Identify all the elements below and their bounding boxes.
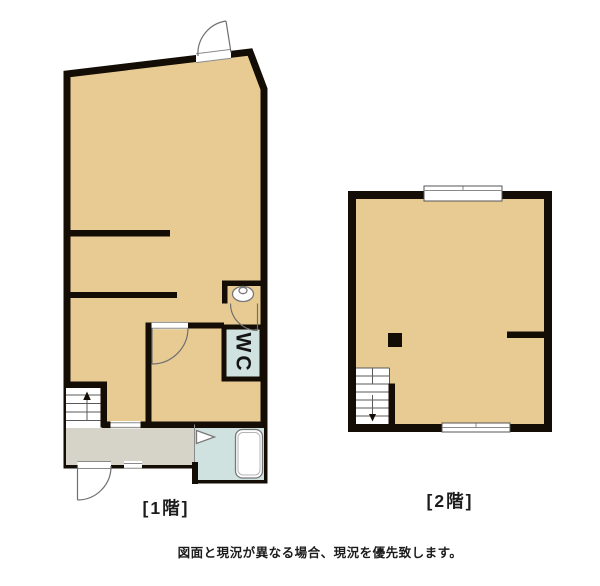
2f-wall-stub — [507, 332, 548, 339]
toilet-icon — [233, 287, 254, 302]
1f-stairs-floor — [66, 385, 103, 428]
floor1-label: [1階] — [143, 498, 190, 518]
floor2-label: [2階] — [427, 491, 474, 511]
stairs-down-icon — [356, 368, 395, 428]
pillar — [388, 333, 402, 347]
floor-plan-page: WC — [0, 0, 600, 586]
disclaimer-text: 図面と現況が異なる場合、現況を優先致します。 — [178, 545, 463, 560]
floorplan-1f: WC — [64, 21, 266, 518]
bathtub-icon — [236, 430, 263, 479]
floorplan-2f: [2階] — [352, 186, 548, 511]
window-bottom-icon — [442, 423, 510, 432]
main-entrance-door-icon — [78, 466, 112, 501]
window-top-icon — [424, 186, 502, 201]
wc-room-label: WC — [232, 333, 255, 374]
floor-plan-drawing: WC — [0, 0, 600, 586]
1f-entrance-hall-floor — [66, 424, 194, 465]
